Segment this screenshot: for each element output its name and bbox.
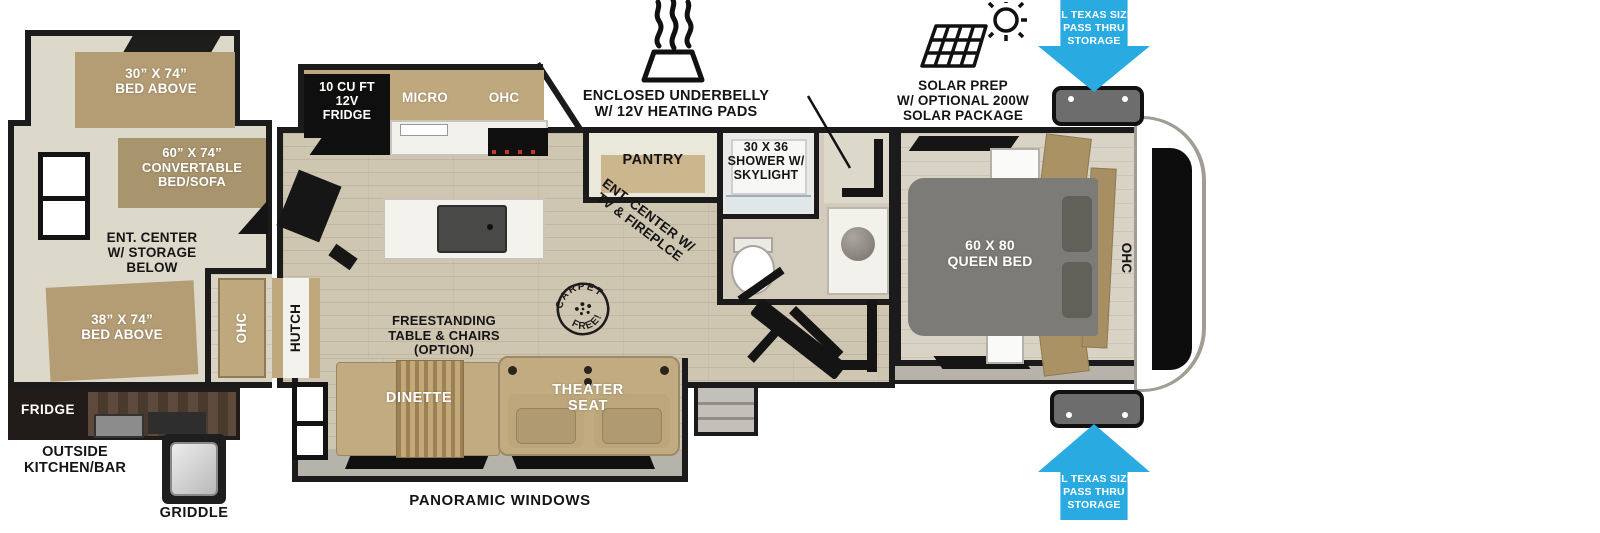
fridge-12v-label: 10 CU FT 12V FRIDGE bbox=[306, 80, 388, 122]
kitchen-sink bbox=[400, 124, 448, 136]
outside-kitchen-grill bbox=[148, 412, 206, 434]
griddle-label: GRIDDLE bbox=[140, 505, 248, 521]
entry-steps bbox=[694, 388, 758, 436]
shower-pan bbox=[726, 195, 811, 212]
rear-ent-center-label: ENT. CENTER W/ STORAGE BELOW bbox=[88, 230, 216, 275]
theater-cupholder-left bbox=[508, 366, 517, 375]
pass-thru-top-label: XL TEXAS SIZE PASS THRU STORAGE bbox=[1046, 9, 1142, 48]
outside-kitchen-appliance bbox=[94, 414, 144, 438]
outside-kitchen-label: OUTSIDE KITCHEN/BAR bbox=[0, 444, 150, 476]
hatch-screw-3 bbox=[1066, 412, 1072, 418]
carpet-free-pattern bbox=[574, 300, 594, 318]
freestanding-label: FREESTANDING TABLE & CHAIRS (OPTION) bbox=[378, 314, 510, 358]
island-faucet bbox=[487, 224, 493, 230]
griddle-plate bbox=[170, 442, 218, 496]
hatch-screw-2 bbox=[1122, 96, 1128, 102]
solar-prep-label: SOLAR PREP W/ OPTIONAL 200W SOLAR PACKAG… bbox=[873, 78, 1053, 123]
island-sink bbox=[437, 205, 507, 253]
micro-label: MICRO bbox=[392, 90, 458, 105]
outside-fridge-label: FRIDGE bbox=[10, 402, 86, 417]
heating-pads-icon bbox=[628, 0, 718, 86]
rear-ohc-label: OHC bbox=[234, 283, 250, 373]
hutch-label: HUTCH bbox=[288, 283, 304, 373]
rv-floorplan: 10 CU FT 12V FRIDGE MICRO OHC PANTRY 30 … bbox=[0, 0, 1600, 533]
bunk-top-label: 30” X 74” BED ABOVE bbox=[80, 66, 232, 96]
theater-seat-label: THEATER SEAT bbox=[508, 382, 668, 414]
pillow-top bbox=[1062, 196, 1092, 252]
pillow-bottom bbox=[1062, 262, 1092, 318]
dinette-side-window-bar bbox=[297, 421, 323, 426]
wd-closet-wall-h bbox=[842, 188, 882, 197]
wardrobe-wall-h bbox=[828, 360, 877, 370]
bunk-window-bar bbox=[43, 196, 85, 201]
bath-sink-basin bbox=[841, 227, 875, 261]
solar-prep-icon bbox=[918, 2, 1028, 78]
entry-step-line-2 bbox=[698, 417, 754, 420]
panoramic-windows-label: PANORAMIC WINDOWS bbox=[360, 493, 640, 510]
underbelly-label: ENCLOSED UNDERBELLY W/ 12V HEATING PADS bbox=[556, 88, 796, 120]
dinette-label: DINETTE bbox=[344, 390, 494, 406]
kitchen-island bbox=[383, 198, 545, 260]
pantry-label: PANTRY bbox=[598, 152, 708, 168]
bunk-bottom-label: 38” X 74” BED ABOVE bbox=[52, 312, 192, 342]
pass-thru-bottom-label: XL TEXAS SIZE PASS THRU STORAGE bbox=[1046, 473, 1142, 512]
queen-bed-label: 60 X 80 QUEEN BED bbox=[918, 238, 1062, 269]
pass-thru-hatch-bottom bbox=[1050, 390, 1144, 428]
dinette-table bbox=[396, 360, 464, 458]
entry-step-line-1 bbox=[698, 402, 754, 405]
bedroom-ohc-label: OHC bbox=[1118, 213, 1134, 303]
washer-dryer-pointer bbox=[798, 94, 858, 172]
bath-vanity bbox=[827, 207, 889, 295]
panoramic-window-right bbox=[511, 454, 655, 469]
hatch-screw-4 bbox=[1122, 412, 1128, 418]
pass-thru-hatch-top bbox=[1052, 86, 1144, 126]
bunk-top-headrest bbox=[123, 36, 220, 52]
kitchen-ohc-label: OHC bbox=[474, 90, 534, 105]
theater-cupholder-right bbox=[660, 366, 669, 375]
griddle bbox=[162, 434, 226, 504]
dinette-side-window bbox=[292, 382, 328, 460]
front-cap-window bbox=[1152, 148, 1192, 370]
hatch-screw-1 bbox=[1068, 96, 1074, 102]
theater-cupholder-1 bbox=[584, 366, 592, 374]
convertible-label: 60” X 74” CONVERTABLE BED/SOFA bbox=[116, 146, 268, 190]
cooktop-knobs bbox=[492, 150, 544, 154]
bunk-room-window bbox=[38, 152, 90, 240]
